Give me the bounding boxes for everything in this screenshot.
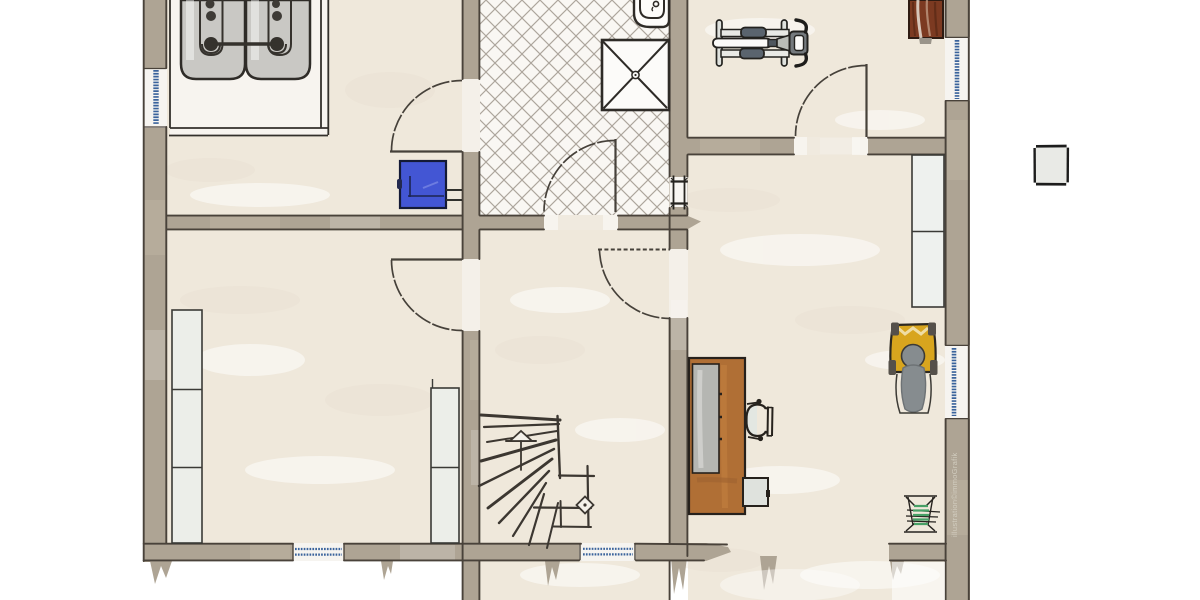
svg-text:illustration©immoGrafik: illustration©immoGrafik <box>950 452 959 537</box>
